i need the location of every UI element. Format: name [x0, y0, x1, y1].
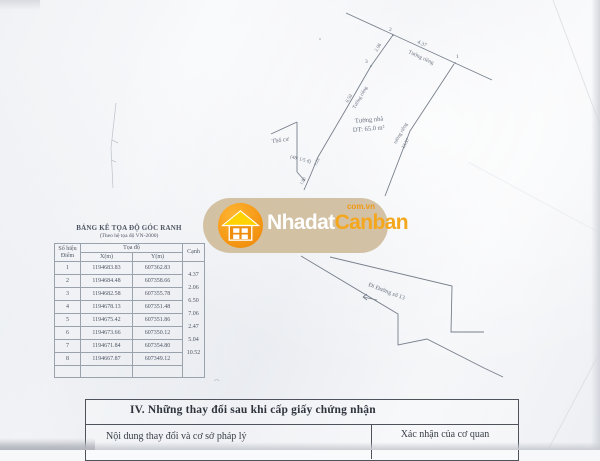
header-edge: Cạnh [183, 244, 205, 262]
empty-cell [133, 366, 183, 378]
table-row: 21194684.48607358.66 [55, 275, 205, 288]
scanned-land-certificate-page: { "watermark": { "brand_first": "Nhadat"… [0, 0, 600, 450]
empty-cell [55, 366, 81, 378]
edge-length: 4.37 [183, 269, 204, 282]
header-x: X(m) [81, 253, 133, 262]
edge-length: 5.04 [183, 334, 204, 347]
brand-second: Canban [335, 211, 408, 234]
edge-length: 10.52 [183, 347, 204, 360]
table-row: 81194667.87607349.12 [55, 353, 205, 366]
cell-x: 1194671.84 [81, 340, 133, 353]
cell-y: 607362.83 [133, 262, 183, 275]
cell-point: 3 [55, 288, 81, 301]
table-row: 61194673.66607350.12 [55, 327, 205, 340]
cell-x: 1194675.42 [81, 314, 133, 327]
paper-top-corner-shadow [0, 0, 40, 10]
section-iv-title: IV. Những thay đổi sau khi cấp giấy chứn… [86, 400, 518, 425]
coordinate-table: BẢNG KÊ TỌA ĐỘ GÓC RANH (Theo hệ tọa độ … [54, 224, 204, 378]
table-filler-row [55, 366, 205, 378]
cell-point: 4 [55, 301, 81, 314]
empty-cell [81, 366, 133, 378]
house-icon [218, 203, 263, 248]
watermark-brand: NhadatCanban [267, 211, 408, 235]
edge-length: 6.50 [183, 295, 204, 308]
brand-first: Nhadat [267, 211, 335, 234]
cell-y: 607350.12 [133, 327, 183, 340]
cell-x: 1194683.83 [81, 262, 133, 275]
cell-y: 607358.66 [133, 275, 183, 288]
cell-point: 8 [55, 353, 81, 366]
cell-point: 7 [55, 340, 81, 353]
cell-x: 1194682.58 [81, 288, 133, 301]
watermark-domain: com.vn [347, 202, 375, 211]
table-row: 71194671.84607354.80 [55, 340, 205, 353]
cell-point: 5 [55, 314, 81, 327]
section-iv-box: IV. Những thay đổi sau khi cấp giấy chứn… [85, 399, 519, 461]
header-y: Y(m) [133, 253, 183, 262]
edge-lengths-cell: 4.372.066.507.062.475.0410.52 [183, 262, 205, 378]
cell-x: 1194667.87 [81, 353, 133, 366]
cell-x: 1194673.66 [81, 327, 133, 340]
header-coords: Tọa độ [81, 244, 183, 253]
table-row: 41194678.13607351.48 [55, 301, 205, 314]
cell-point: 6 [55, 327, 81, 340]
paper-right-edge-shadow [591, 0, 600, 450]
coordinate-table-title: BẢNG KÊ TỌA ĐỘ GÓC RANH [54, 224, 204, 232]
cell-y: 607354.80 [133, 340, 183, 353]
cell-x: 1194684.48 [81, 275, 133, 288]
table-row: 31194682.58607355.78 [55, 288, 205, 301]
table-row: 11194683.83607362.834.372.066.507.062.47… [55, 262, 205, 275]
edge-length: 2.47 [183, 321, 204, 334]
cell-y: 607349.12 [133, 353, 183, 366]
coordinate-table-subtitle: (Theo hệ tọa độ VN-2000) [54, 233, 204, 239]
coordinate-table-grid: Số hiệu Điểm Tọa độ Cạnh X(m) Y(m) 11194… [54, 243, 205, 378]
header-point: Số hiệu Điểm [55, 244, 81, 262]
edge-length: 2.06 [183, 282, 204, 295]
table-row: 51194675.42607351.86 [55, 314, 205, 327]
coord-table-body: 11194683.83607362.834.372.066.507.062.47… [55, 262, 205, 378]
cell-point: 1 [55, 262, 81, 275]
cell-y: 607351.86 [133, 314, 183, 327]
cell-y: 607355.78 [133, 288, 183, 301]
cell-point: 2 [55, 275, 81, 288]
cell-y: 607351.48 [133, 301, 183, 314]
watermark-logo: NhadatCanban com.vn [203, 198, 388, 253]
cell-x: 1194678.13 [81, 301, 133, 314]
paper-corner-shadow [0, 438, 95, 450]
edge-length: 7.06 [183, 308, 204, 321]
